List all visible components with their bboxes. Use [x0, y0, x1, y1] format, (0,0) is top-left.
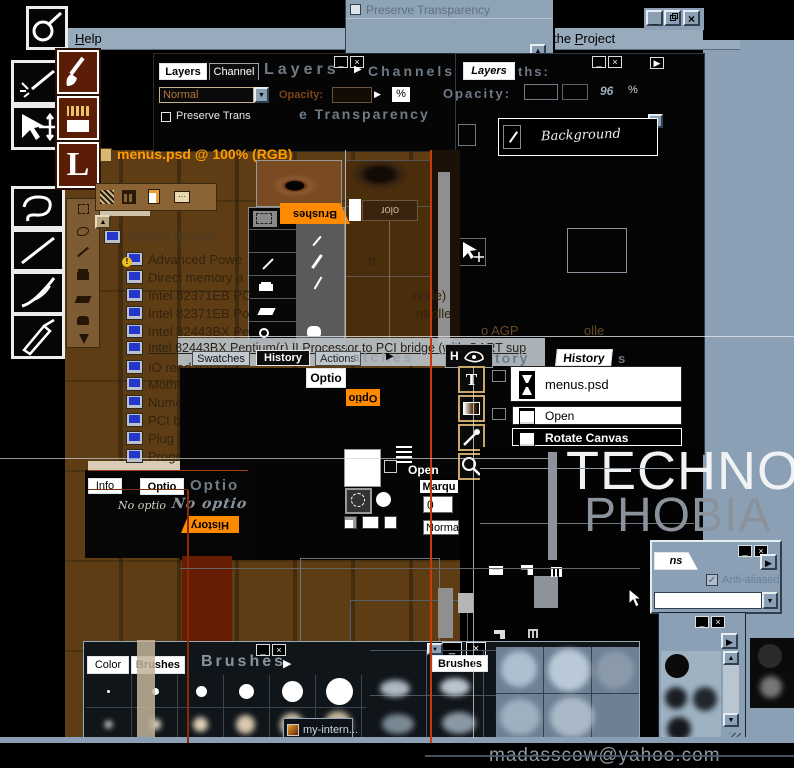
layer-brush-cell — [503, 125, 521, 149]
tab-history-dark[interactable]: H — [445, 344, 493, 368]
brush-grid-big — [496, 647, 639, 740]
grid-hand-icon[interactable] — [307, 326, 321, 336]
paletteB-scroll-up[interactable]: ▲ — [723, 651, 739, 665]
options-button[interactable]: Optio — [306, 368, 346, 388]
preserve-trans-checkbox[interactable] — [161, 112, 171, 122]
dashed-circle — [351, 493, 365, 507]
brush-sample[interactable] — [665, 687, 687, 709]
stamp-tool-button[interactable] — [57, 96, 99, 140]
grid-eraser-icon[interactable] — [257, 308, 275, 315]
right-dark-cell — [750, 638, 794, 708]
panel-divider — [346, 18, 554, 19]
preserve-trans-label: Preserve Trans — [176, 110, 251, 122]
red-column-1 — [182, 556, 232, 646]
brush-sample[interactable] — [501, 651, 537, 687]
palette2-swatch-cell[interactable] — [458, 124, 476, 146]
value-input[interactable]: 0 — [423, 496, 453, 513]
grid-marquee-icon — [256, 213, 272, 224]
white-line-h2 — [0, 458, 548, 459]
blend-dropdown-arrow[interactable]: ▼ — [254, 87, 269, 103]
lasso-tool-button[interactable] — [11, 186, 65, 229]
tab-ns[interactable]: ns — [654, 552, 698, 570]
dots-icon[interactable]: ··· — [174, 191, 190, 203]
paletteB-arrow-button[interactable]: ▶ — [721, 633, 738, 649]
brush-sample[interactable] — [196, 686, 207, 697]
brand-phobia: PHOBIA — [584, 492, 771, 540]
computer-icon — [104, 230, 121, 244]
magnifier-icon — [29, 9, 65, 47]
paletteB-minimize-button[interactable]: _ — [695, 616, 709, 628]
tree-row-label: Intel 82371EB Po — [148, 306, 249, 321]
brushes-palette-right: _ × ▶ ▲ ▼ — [658, 612, 746, 745]
ghost-s-text: s — [618, 351, 627, 366]
gray-bar-3 — [458, 593, 473, 613]
tool-grid-palette — [248, 207, 345, 345]
brush-dropdown-arrow[interactable]: ▼ — [762, 592, 778, 609]
tabs-arrow-icon[interactable]: ▶ — [386, 351, 394, 362]
opacity-input-1[interactable] — [332, 87, 372, 103]
ghost-transparency-text: e Transparency — [299, 106, 430, 122]
gray-bar-2 — [438, 588, 453, 638]
menu-help[interactable]: Help — [75, 31, 102, 46]
device-icon — [126, 449, 143, 463]
grid-brush2-icon[interactable] — [311, 254, 323, 269]
brown-grid-column — [345, 207, 432, 345]
no-options-text: No optio — [118, 499, 166, 512]
grid-pen2-icon[interactable] — [314, 276, 323, 289]
stamp-icon — [59, 98, 97, 138]
text-fragment: ntrolle — [416, 306, 451, 321]
preserve-transparency-label: Preserve Transparency — [366, 3, 490, 17]
tan-overlay-strip — [137, 640, 155, 740]
brush-sample[interactable] — [239, 684, 254, 699]
red-line-v — [187, 490, 189, 743]
page-icon-small[interactable] — [384, 516, 397, 529]
tab-channel[interactable]: Channel — [209, 63, 259, 80]
brush-sample[interactable] — [500, 699, 540, 735]
pen-tool-button[interactable] — [11, 313, 65, 359]
mouse-cursor — [628, 588, 642, 608]
brush-sample[interactable] — [693, 687, 717, 711]
device-icon — [126, 413, 143, 427]
quill-icon — [14, 274, 62, 312]
warning-icon: ! — [122, 257, 132, 267]
anti-aliased-label: Anti-aliased — [722, 574, 779, 586]
tab-h-label: H — [450, 349, 459, 363]
palette2-arrow-button[interactable]: ▶ — [650, 57, 664, 69]
no-options-ghost-text: No optio — [171, 496, 249, 512]
brushes-window: _ × _ × Color Brushes Brushes ▶ — [83, 641, 640, 741]
device-icon — [126, 377, 143, 391]
taskbar-item-icon — [287, 724, 299, 736]
opacity-label-1: Opacity: — [279, 89, 323, 101]
ghost-brushes-text: Brushes — [201, 653, 286, 671]
grid-marquee-cell[interactable] — [253, 211, 277, 227]
brush-sample — [760, 676, 782, 698]
top-black-left — [65, 0, 345, 28]
paletteB-scroll-down[interactable]: ▼ — [723, 713, 739, 727]
eyedropper-icon — [460, 426, 483, 449]
restore-button[interactable] — [664, 10, 681, 26]
opacity-bracket-2 — [562, 84, 588, 100]
line-tool-button[interactable] — [11, 229, 65, 272]
blend-mode-select[interactable]: Normal — [159, 87, 254, 103]
white-line-v — [345, 150, 346, 350]
device-icon — [126, 431, 143, 445]
magnifier-tool-button[interactable] — [26, 6, 68, 50]
brush-sample[interactable] — [105, 721, 112, 728]
options-panel-right: _ × ns ▶ ✓ Anti-aliased ▼ — [650, 540, 782, 614]
hand-eye-icon — [462, 348, 486, 366]
device-icon — [126, 395, 143, 409]
brush-sample[interactable] — [380, 680, 410, 697]
brush-sample[interactable] — [282, 681, 303, 702]
paletteB-close-button[interactable]: × — [711, 616, 725, 628]
document-icon — [100, 148, 112, 162]
eye-thumbnail — [256, 160, 342, 207]
top-right-black-corner — [703, 0, 794, 40]
ghost-atches-text: atches — [352, 349, 414, 365]
hourglass-icon — [518, 371, 536, 399]
flipped-history-tab: History — [181, 516, 239, 533]
percent-box-1: % — [392, 87, 410, 102]
ghost-opacity-text: Opacity: — [443, 86, 511, 101]
device-scroll-left[interactable]: ▲ — [95, 215, 111, 229]
ghost-channels-text: Channels — [368, 63, 455, 79]
grid-brush-icon[interactable] — [262, 258, 273, 269]
brush-sample[interactable] — [236, 715, 255, 734]
page-icon-toolbar[interactable] — [148, 189, 160, 204]
window-controls: _ × — [644, 8, 704, 30]
layer-name-background: Background — [541, 127, 621, 145]
white-line-v2 — [473, 366, 474, 738]
history-slot-box — [492, 408, 506, 420]
trash-mini-icon — [528, 629, 538, 638]
anti-aliased-checkbox[interactable]: ✓ — [706, 574, 718, 586]
brand-separator-blob — [534, 576, 558, 608]
history-snapshot-label: menus.psd — [545, 377, 609, 392]
normal-input[interactable]: Norma — [423, 520, 459, 535]
flipped-brushes-tab: Brushes — [280, 203, 350, 224]
device-toolbar: ··· — [95, 183, 217, 211]
orange-line-v — [430, 150, 432, 743]
history-snapshot-row[interactable]: menus.psd — [510, 366, 682, 402]
device-icon — [126, 341, 143, 355]
brush-sample[interactable] — [550, 697, 594, 737]
gradient-icon — [463, 402, 480, 415]
flipped-options-tab: Optio — [346, 389, 380, 406]
tab-brushes-2[interactable]: Brushes — [432, 655, 488, 672]
tab-options[interactable]: Optio — [140, 478, 184, 495]
device-icon — [126, 360, 143, 374]
taskbar-item-label: my-intern... — [303, 724, 358, 736]
history-open-label: Open — [545, 409, 574, 423]
tab-layers[interactable]: Layers — [159, 63, 207, 80]
palette2-close-button[interactable]: × — [608, 56, 622, 68]
ghost-paths-text: ths: — [518, 64, 550, 79]
brush-sample[interactable] — [382, 714, 414, 734]
technophobia-collage: Help the Project Preserve Transparency ▲… — [0, 0, 794, 768]
panel-minimize-button[interactable]: _ — [738, 545, 752, 557]
device-icon — [126, 288, 143, 302]
device-icon — [126, 270, 143, 284]
tab-info[interactable]: Info — [88, 478, 122, 494]
history-page-icon — [519, 430, 535, 447]
open-label: Open — [408, 463, 439, 477]
circle-mask-icon[interactable] — [345, 488, 372, 514]
history-page-icon — [519, 408, 535, 425]
tab-history-2[interactable]: History — [555, 349, 613, 366]
mini-lasso-icon[interactable] — [77, 227, 89, 236]
gray-line-h4 — [480, 523, 694, 524]
brush-sample[interactable] — [193, 717, 208, 732]
palette2-minimize-button[interactable]: _ — [592, 56, 606, 68]
mini-hand-icon[interactable] — [77, 316, 89, 325]
tree-row-label: Intel 82371EB PC — [148, 288, 251, 303]
marquee-label: Marqu — [419, 479, 459, 494]
type-tool-button[interactable]: L — [57, 142, 99, 188]
brush-sample[interactable] — [596, 651, 634, 689]
brush-sample — [758, 644, 782, 668]
columns-icon[interactable] — [122, 190, 136, 204]
move-tool-icon — [458, 238, 486, 266]
mini-brush-icon[interactable] — [77, 247, 89, 258]
hatch-icon[interactable] — [100, 190, 114, 204]
brush-sample[interactable] — [440, 678, 470, 696]
layer-brush-icon — [509, 131, 518, 143]
white-notch — [349, 199, 361, 221]
type-button[interactable]: T — [458, 366, 485, 393]
mini-marquee-icon[interactable] — [78, 204, 89, 214]
brush-sample[interactable] — [326, 678, 353, 705]
percent-skew-text: 96 — [600, 84, 613, 98]
tree-row-label: Advanced Powe — [148, 252, 242, 267]
tab-swatches[interactable]: Swatches — [192, 351, 250, 366]
close-button[interactable]: × — [683, 10, 700, 26]
paintbrush-tool-button[interactable] — [57, 50, 99, 94]
panel-arrow-button[interactable]: ▶ — [760, 554, 777, 570]
tree-row-label: Direct memory a — [148, 270, 243, 285]
strike-line — [425, 755, 794, 757]
brush-sample[interactable] — [548, 649, 590, 691]
palette1-arrow-icon[interactable]: ▶ — [354, 64, 362, 75]
history-state-open[interactable]: Open — [512, 406, 682, 425]
pen-icon — [14, 316, 62, 356]
ghost-tory-text: tory — [495, 350, 529, 366]
stairs-icon — [396, 445, 412, 463]
ghost-rect-outline — [567, 228, 627, 273]
gradient-button[interactable] — [458, 395, 485, 422]
mini-pen-icon[interactable] — [79, 334, 89, 344]
ghost-layers-text: Layers — [264, 61, 340, 79]
layer-row-background[interactable]: Background — [498, 118, 658, 156]
ghost-options-text: Optio — [190, 477, 239, 494]
brush-sample[interactable] — [665, 654, 689, 678]
orange-line-h1 — [88, 470, 248, 471]
tab-history[interactable]: History — [256, 350, 310, 366]
brush-sample[interactable] — [442, 712, 476, 734]
page-icon-small[interactable] — [344, 516, 357, 529]
mini-eraser-icon[interactable] — [75, 296, 92, 303]
text-fragment: rt — [368, 253, 376, 268]
minimize-button[interactable]: _ — [646, 10, 663, 26]
lasso-icon — [14, 189, 62, 226]
gray-line-h3 — [480, 468, 680, 469]
orange-line-h2 — [88, 489, 188, 490]
tree-root-label: System devices — [127, 229, 218, 244]
gray-line-h5 — [180, 568, 640, 569]
tree-line — [118, 242, 120, 456]
flipped-color-tab: olor — [362, 200, 418, 221]
paintbrush-icon — [59, 52, 97, 92]
brushes-arrow-icon[interactable]: ▶ — [283, 657, 291, 670]
quill-tool-button[interactable] — [11, 271, 65, 315]
tab-layers-2[interactable]: Layers — [463, 62, 515, 80]
device-icon — [126, 306, 143, 320]
white-line-h1 — [178, 336, 794, 337]
preserve-transparency-checkbox[interactable] — [350, 4, 361, 15]
restore-icon-back — [672, 13, 678, 19]
opacity-slider-arrow[interactable]: ▶ — [374, 89, 381, 100]
brush-dropdown[interactable] — [654, 592, 762, 609]
project-label: the Project — [553, 31, 615, 46]
brush-grid-right — [661, 651, 721, 744]
line-icon — [14, 232, 62, 269]
mini-stamp-icon[interactable] — [77, 272, 89, 280]
paletteB-scroll-track[interactable] — [723, 665, 739, 713]
brush-sample[interactable] — [107, 690, 110, 693]
white-swatch[interactable] — [344, 449, 381, 487]
grid-pencil-icon[interactable] — [312, 236, 321, 246]
percent-box-2: % — [628, 84, 638, 96]
filled-circle-icon[interactable] — [376, 492, 391, 507]
page-icon-small[interactable] — [362, 516, 379, 529]
history-slot-box — [492, 370, 506, 382]
grid-stamp-icon[interactable] — [259, 284, 273, 291]
opacity-bracket-1 — [524, 84, 558, 100]
tab-color[interactable]: Color — [87, 656, 129, 674]
device-icon — [126, 324, 143, 338]
